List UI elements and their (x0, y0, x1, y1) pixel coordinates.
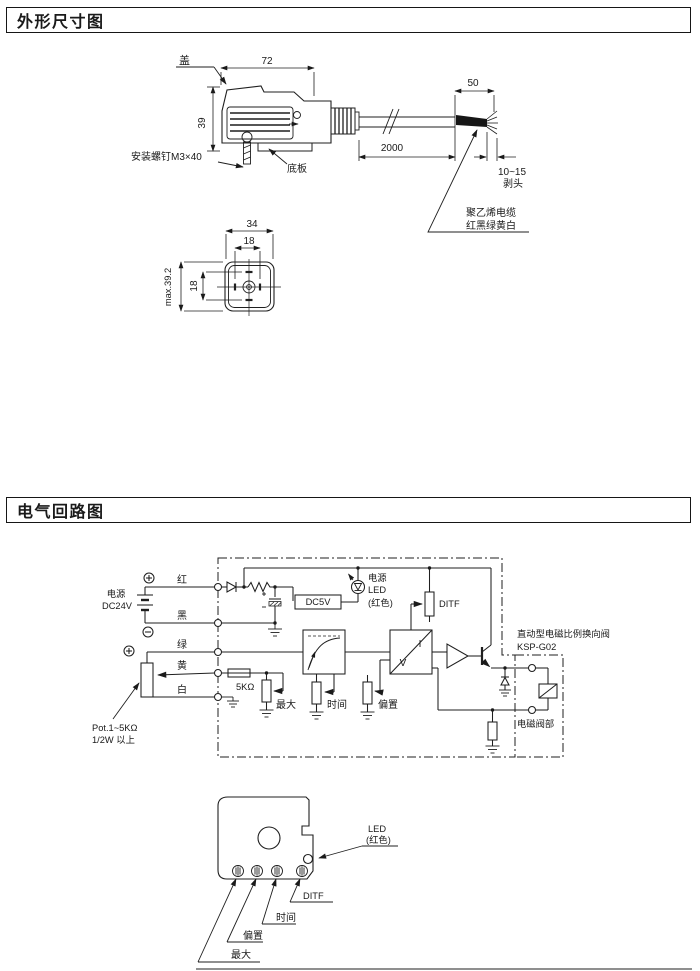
section-title-circuit: 电气回路图 (6, 497, 691, 523)
white-ground (222, 697, 240, 707)
battery-icon (137, 595, 153, 610)
dim-34-label: 34 (246, 219, 258, 230)
dim-50-label: 50 (467, 78, 479, 89)
power-supply: 电源 DC24V (102, 573, 154, 637)
knob-ditf-label: DITF (303, 891, 324, 901)
ditf-trimmer: DITF (411, 566, 460, 630)
dim-50: 50 (455, 78, 494, 112)
ground-icon (499, 690, 511, 696)
max-gain-pot: 5KΩ 最大 (222, 669, 297, 717)
knob-offset-callout: 偏置 (227, 879, 263, 942)
ground-icon (486, 746, 500, 753)
mounting-screw (242, 132, 252, 164)
knob-offset-label: 偏置 (243, 929, 263, 942)
cable-colors-label: 红黑绿黄白 (466, 219, 516, 232)
wire-red-label: 红 (177, 573, 187, 586)
knob-max-icon (233, 866, 244, 877)
solenoid-enclosure-border (515, 655, 563, 757)
cable-type-label: 聚乙烯电缆 (466, 206, 516, 219)
cable-gland (331, 108, 359, 134)
dim-2000: 2000 (359, 95, 455, 161)
strip-head-label: 剥头 (503, 178, 523, 190)
power-voltage-label: DC24V (102, 601, 133, 611)
base-plate-label: 底板 (287, 162, 307, 175)
capacitor-icon (262, 587, 281, 623)
dim-18-top-label: 18 (243, 236, 255, 247)
cable (359, 109, 455, 134)
time-pot: 时间 (310, 674, 348, 719)
ground-icon (310, 712, 324, 719)
end-view: 34 18 (163, 219, 281, 316)
diode-icon (501, 678, 509, 686)
iv-v-label: V (400, 658, 407, 669)
command-potentiometer: Pot.1~5KΩ 1/2W 以上 (92, 646, 153, 745)
diagram-canvas: 盖 72 (0, 0, 700, 971)
r5k-label: 5KΩ (236, 682, 254, 692)
dim-2000-label: 2000 (381, 143, 404, 154)
knob-time-label: 时间 (276, 911, 296, 924)
ground-icon (361, 712, 375, 719)
screw-callout: 安装螺钉M3×40 (131, 150, 243, 167)
section-title-outline: 外形尺寸图 (6, 7, 691, 33)
time-label: 时间 (327, 698, 347, 711)
panel-led-icon (304, 855, 313, 864)
iv-converter: I V (390, 630, 447, 674)
pot-spec-label-2: 1/2W 以上 (92, 735, 135, 745)
dim-10-15: 10~15 剥头 (474, 132, 526, 190)
scanned-manual-page: 外形尺寸图 电气回路图 盖 72 (0, 0, 700, 971)
ground-icon (260, 710, 274, 717)
offset-label: 偏置 (378, 698, 398, 711)
amplifier-enclosure-border (218, 558, 515, 757)
led-label-2: LED (368, 585, 386, 595)
output-stage (447, 568, 529, 670)
wire-white-label: 白 (177, 683, 187, 696)
dim-18-left-label: 18 (189, 280, 200, 292)
dim-max-label: max.39.2 (163, 268, 173, 306)
outline-drawing: 盖 72 (131, 53, 529, 316)
cover-label: 盖 (179, 53, 190, 67)
circuit-drawing: 电源 DC24V 红 黑 绿 黄 白 (92, 558, 610, 757)
solenoid-part-label: 电磁阀部 (517, 718, 554, 729)
device-side-view (222, 86, 359, 164)
ramp-block (222, 630, 391, 674)
knob-time-callout: 时间 (262, 879, 296, 924)
cover-callout: 盖 (176, 53, 226, 84)
knob-max-label: 最大 (231, 948, 251, 961)
adjustment-knobs (233, 866, 308, 877)
dc5v-label: DC5V (306, 597, 332, 607)
led-icon (352, 581, 365, 594)
dim-39: 39 (197, 87, 220, 151)
panel-led-label-2: (红色) (366, 834, 391, 845)
dim-39-label: 39 (197, 117, 208, 129)
knob-ditf-icon (297, 866, 308, 877)
resistor-icon (248, 583, 275, 592)
screw-label: 安装螺钉M3×40 (131, 150, 202, 163)
lead-wires: 红 黑 绿 黄 白 (145, 573, 215, 697)
max-label: 最大 (276, 698, 296, 711)
panel-drawing: LED (红色) DITF 时间 偏置 (196, 797, 692, 969)
current-sense (432, 668, 529, 753)
led-label-3: (红色) (368, 597, 393, 608)
cable-hole (258, 827, 280, 849)
iv-i-label: I (419, 639, 422, 650)
ground-icon (268, 623, 282, 636)
base-plate-callout: 底板 (269, 149, 307, 175)
sense-resistor-icon (488, 722, 497, 740)
flyback-diode (499, 668, 511, 696)
knob-offset-icon (252, 866, 263, 877)
panel-led-label-1: LED (368, 824, 386, 834)
knob-time-icon (272, 866, 283, 877)
led-label-1: 电源 (368, 572, 387, 583)
valve-name-label: 直动型电磁比例换向阀 (517, 628, 610, 639)
pot-spec-label-1: Pot.1~5KΩ (92, 723, 138, 733)
wire-green-label: 绿 (177, 638, 187, 651)
dim-10-15-label: 10~15 (498, 167, 527, 178)
wire-black-label: 黑 (177, 610, 187, 622)
ditf-label: DITF (439, 599, 460, 609)
indicator-hole (294, 112, 301, 119)
wire-yellow-label: 黄 (177, 659, 187, 672)
valve-model-label: KSP-G02 (517, 642, 556, 652)
offset-pot: 偏置 (361, 660, 399, 719)
knob-ditf-callout: DITF (290, 879, 333, 902)
amplifier-icon (447, 644, 468, 668)
power-label: 电源 (107, 588, 126, 599)
dim-72: 72 (221, 56, 314, 96)
section-title-circuit-label: 电气回路图 (17, 498, 105, 522)
dim-72-label: 72 (261, 56, 273, 67)
panel-led-callout: LED (红色) (319, 824, 398, 858)
section-title-outline-label: 外形尺寸图 (17, 8, 105, 32)
diode-icon (227, 582, 236, 592)
